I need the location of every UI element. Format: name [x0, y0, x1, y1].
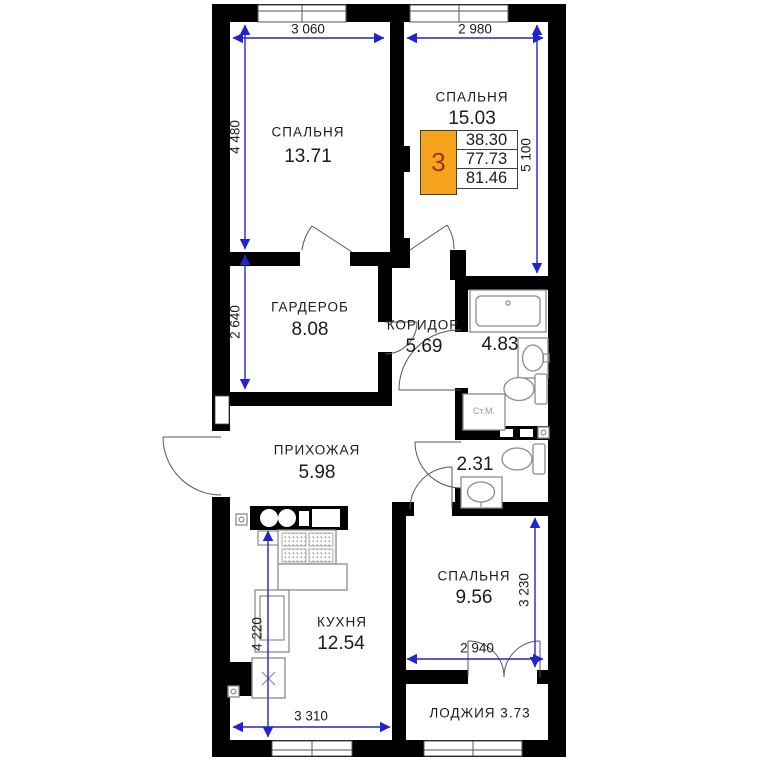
- door-arc: [302, 226, 352, 252]
- door-arc: [410, 467, 452, 509]
- wall-segment: [378, 266, 392, 322]
- vent-icon: [228, 686, 239, 697]
- room-label-loggia: ЛОДЖИЯ 3.73: [429, 706, 530, 721]
- dimension-label: 5 100: [519, 138, 534, 172]
- room-label-kitchen: КУХНЯ: [317, 615, 367, 630]
- dimension-label: 2 940: [460, 641, 494, 656]
- room-area-bathroom: 4.83: [482, 334, 519, 356]
- room-area-kitchen: 12.54: [317, 633, 365, 655]
- unit-rooms-count: 3: [420, 130, 457, 195]
- window-icon: [272, 741, 352, 756]
- wall-segment: [406, 670, 468, 684]
- dimension-label: 2 640: [228, 305, 243, 339]
- loggia-area: 3.73: [500, 706, 530, 721]
- door-arc: [415, 442, 461, 488]
- room-label-bedroom3: СПАЛЬНЯ: [438, 569, 511, 584]
- bathroom-toilet-icon: [504, 374, 547, 404]
- room-label-bedroom2: СПАЛЬНЯ: [436, 90, 509, 105]
- window-icon: [410, 5, 508, 22]
- room-area-bedroom2: 15.03: [448, 108, 496, 130]
- window-icon: [424, 741, 522, 756]
- loggia-name: ЛОДЖИЯ: [429, 706, 495, 721]
- room-label-hallway: ПРИХОЖАЯ: [274, 443, 360, 458]
- dimension-label: 4 220: [250, 617, 265, 651]
- kitchen-sink-icon: [260, 509, 340, 527]
- room-area-bedroom3: 9.56: [456, 587, 493, 609]
- bathtub-icon: [470, 290, 546, 332]
- room-label-bedroom1: СПАЛЬНЯ: [272, 125, 345, 140]
- floor-plan-drawing: [0, 0, 768, 768]
- room-area-corridor: 5.69: [406, 336, 443, 358]
- window-icon: [258, 5, 346, 22]
- wall-niche: [215, 396, 229, 424]
- washing-machine-label: Ст.М.: [473, 406, 495, 416]
- bathroom-sink-icon: [518, 338, 549, 378]
- dimension-label: 3 230: [517, 573, 532, 607]
- wall-segment: [450, 250, 466, 280]
- wall-segment: [548, 4, 566, 757]
- vent-icon: [236, 514, 247, 525]
- wall-segment: [455, 276, 566, 290]
- room-area-bedroom1: 13.71: [284, 146, 332, 168]
- unit-area-value: 38.30: [456, 130, 518, 151]
- wall-segment: [212, 252, 300, 266]
- room-area-hallway: 5.98: [299, 462, 336, 484]
- wall-segment: [212, 497, 230, 757]
- wall-vent-inset: [520, 429, 533, 437]
- vent-icon: [538, 427, 549, 438]
- floor-plan-page: СПАЛЬНЯ 13.71 СПАЛЬНЯ 15.03 3 38.30 77.7…: [0, 0, 768, 768]
- room-area-wc: 2.31: [457, 454, 494, 476]
- wc-toilet-icon: [502, 444, 545, 474]
- kitchen-counter-icon: [278, 564, 347, 590]
- wall-segment: [404, 146, 410, 172]
- wc-sink-icon: [461, 477, 502, 508]
- stove-icon: [278, 530, 336, 564]
- wall-segment: [212, 4, 230, 431]
- wall-segment: [537, 670, 566, 684]
- unit-info-card: 3 38.30 77.73 81.46: [420, 130, 518, 195]
- room-area-wardrobe: 8.08: [292, 319, 329, 341]
- door-arc: [410, 225, 454, 250]
- wall-segment: [392, 516, 406, 740]
- wall-segment: [390, 4, 404, 252]
- dimension-label: 3 310: [294, 709, 328, 724]
- entry-door-opening: [212, 431, 230, 497]
- wall-segment: [390, 238, 410, 268]
- dimension-label: 3 060: [291, 22, 325, 37]
- room-label-wardrobe: ГАРДЕРОБ: [271, 300, 349, 315]
- unit-area-value: 81.46: [456, 168, 518, 189]
- dimension-label: 2 980: [458, 22, 492, 37]
- unit-area-value: 77.73: [456, 149, 518, 170]
- wall-segment: [350, 252, 390, 266]
- dimension-label: 4 480: [228, 120, 243, 154]
- wall-segment: [212, 392, 392, 406]
- room-label-corridor: КОРИДОР: [387, 318, 460, 333]
